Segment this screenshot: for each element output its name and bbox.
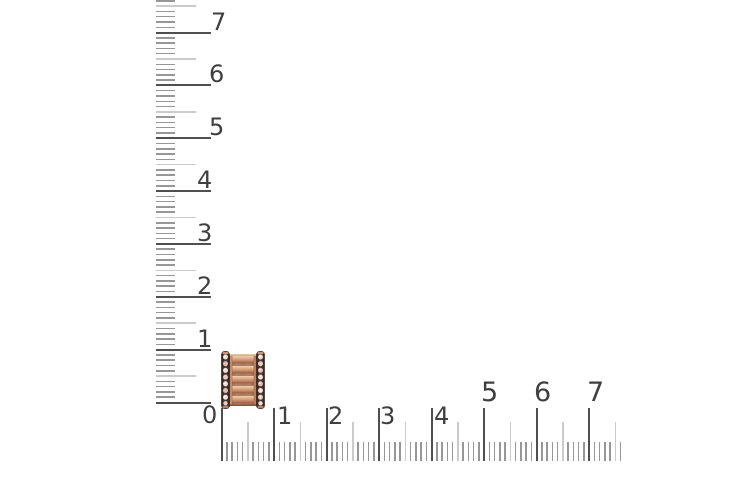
- ruler-tick: [415, 442, 417, 461]
- ruler-tick: [279, 442, 281, 461]
- ruler-tick: [156, 79, 175, 81]
- ruler-tick: [156, 365, 175, 367]
- ruler-tick: [573, 442, 575, 461]
- ruler-tick: [504, 442, 506, 461]
- ruler-tick: [499, 442, 501, 461]
- ruler-tick: [156, 153, 175, 155]
- ruler-tick: [156, 312, 175, 314]
- ruler-tick: [156, 375, 196, 377]
- ruler-tick: [294, 442, 296, 461]
- ruler-tick: [156, 227, 175, 229]
- ruler-tick: [431, 408, 433, 461]
- ruler-tick: [410, 442, 412, 461]
- ruler-tick: [389, 442, 391, 461]
- ruler-tick: [252, 442, 254, 461]
- ruler-tick: [156, 270, 196, 272]
- ruler-tick: [156, 5, 196, 7]
- ruler-tick: [405, 422, 407, 461]
- ruler-tick: [156, 381, 175, 383]
- ruler-tick: [336, 442, 338, 461]
- ruler-tick: [331, 442, 333, 461]
- ruler-tick: [156, 0, 175, 2]
- ruler-tick: [156, 95, 175, 97]
- ruler-tick: [263, 442, 265, 461]
- ruler-tick: [156, 21, 175, 23]
- ruler-tick: [457, 422, 459, 461]
- ruler-tick: [156, 74, 175, 76]
- ruler-tick: [300, 422, 302, 461]
- ruler-label-2: 2: [197, 274, 212, 298]
- ruler-tick: [156, 90, 175, 92]
- ruler-tick: [436, 442, 438, 461]
- ruler-label-2: 2: [328, 404, 343, 428]
- ruler-tick: [352, 422, 354, 461]
- ruler-tick: [156, 137, 211, 139]
- ruler-tick: [156, 211, 175, 213]
- bead-left-gem-rim: [222, 351, 230, 408]
- ruler-tick: [520, 442, 522, 461]
- ruler-tick: [156, 27, 175, 29]
- ruler-label-6: 6: [209, 62, 224, 86]
- ruler-tick: [604, 442, 606, 461]
- ruler-tick: [321, 442, 323, 461]
- ruler-tick: [156, 101, 175, 103]
- ruler-tick: [552, 442, 554, 461]
- ruler-tick: [156, 164, 196, 166]
- ruler-tick: [373, 442, 375, 461]
- ruler-tick: [156, 64, 175, 66]
- ruler-tick: [156, 359, 175, 361]
- ruler-tick: [609, 442, 611, 461]
- ruler-tick: [231, 442, 233, 461]
- ruler-tick: [156, 196, 175, 198]
- ruler-tick: [156, 116, 175, 118]
- ruler-tick: [156, 354, 175, 356]
- bead-right-gem-rim: [257, 351, 265, 408]
- ruler-tick: [156, 32, 211, 34]
- ruler-tick: [494, 442, 496, 461]
- ruler-tick: [156, 254, 175, 256]
- ruler-tick: [156, 222, 175, 224]
- ruler-tick: [156, 48, 175, 50]
- ruler-tick: [342, 442, 344, 461]
- ruler-label-4: 4: [197, 168, 212, 192]
- ruler-tick: [156, 259, 175, 261]
- ruler-tick: [620, 442, 622, 461]
- ruler-tick: [541, 442, 543, 461]
- ruler-tick: [536, 408, 538, 461]
- ruler-label-5: 5: [481, 379, 498, 406]
- product-image-bead-charm: [221, 351, 265, 409]
- ruler-tick: [156, 322, 196, 324]
- ruler-tick: [562, 422, 564, 461]
- ruler-tick: [156, 396, 175, 398]
- ruler-tick: [156, 174, 175, 176]
- ruler-label-7: 7: [587, 379, 604, 406]
- ruler-tick: [156, 16, 175, 18]
- ruler-label-6: 6: [534, 379, 551, 406]
- ruler-tick: [363, 442, 365, 461]
- ruler-tick: [156, 301, 175, 303]
- ruler-tick: [426, 442, 428, 461]
- ruler-label-1: 1: [277, 404, 292, 428]
- ruler-tick: [289, 442, 291, 461]
- ruler-tick: [546, 442, 548, 461]
- ruler-tick: [489, 442, 491, 461]
- ruler-tick: [156, 206, 175, 208]
- ruler-tick: [156, 344, 175, 346]
- ruler-tick: [156, 42, 175, 44]
- ruler-tick: [156, 328, 175, 330]
- ruler-tick: [156, 391, 175, 393]
- ruler-tick: [615, 422, 617, 461]
- ruler-tick: [156, 143, 175, 145]
- ruler-tick: [583, 442, 585, 461]
- ruler-tick: [452, 442, 454, 461]
- ruler-tick: [156, 106, 175, 108]
- ruler-tick: [578, 442, 580, 461]
- ruler-tick: [156, 84, 211, 86]
- ruler-tick: [156, 307, 175, 309]
- ruler-tick: [420, 442, 422, 461]
- ruler-tick: [156, 333, 175, 335]
- ruler-tick: [258, 442, 260, 461]
- ruler-tick: [156, 201, 175, 203]
- ruler-tick: [473, 442, 475, 461]
- ruler-tick: [588, 408, 590, 461]
- ruler-tick: [567, 442, 569, 461]
- ruler-tick: [156, 37, 175, 39]
- ruler-tick: [156, 169, 175, 171]
- ruler-tick: [237, 442, 239, 461]
- ruler-tick: [156, 11, 175, 13]
- ruler-tick: [557, 442, 559, 461]
- ruler-tick: [310, 442, 312, 461]
- ruler-tick: [156, 370, 175, 372]
- ruler-tick: [242, 442, 244, 461]
- ruler-tick: [599, 442, 601, 461]
- ruler-tick: [399, 442, 401, 461]
- ruler-tick: [156, 217, 196, 219]
- bead-gold-body: [230, 354, 257, 406]
- ruler-label-3: 3: [197, 221, 212, 245]
- ruler-tick: [447, 442, 449, 461]
- ruler-tick: [525, 442, 527, 461]
- ruler-tick: [156, 69, 175, 71]
- ruler-label-7: 7: [211, 10, 226, 34]
- ruler-tick: [156, 338, 175, 340]
- ruler-tick: [510, 422, 512, 461]
- ruler-tick: [441, 442, 443, 461]
- ruler-tick: [156, 317, 175, 319]
- ruler-tick: [156, 238, 175, 240]
- ruler-tick: [478, 442, 480, 461]
- ruler-tick: [247, 422, 249, 461]
- ruler-tick: [531, 442, 533, 461]
- ruler-tick: [515, 442, 517, 461]
- ruler-tick: [305, 442, 307, 461]
- ruler-tick: [594, 442, 596, 461]
- ruler-label-0: 0: [202, 403, 217, 427]
- ruler-tick: [156, 127, 175, 129]
- ruler-tick: [368, 442, 370, 461]
- ruler-tick: [221, 408, 223, 461]
- ruler-label-3: 3: [380, 404, 395, 428]
- ruler-tick: [156, 291, 175, 293]
- ruler-tick: [347, 442, 349, 461]
- ruler-tick: [156, 264, 175, 266]
- ruler-tick: [156, 185, 175, 187]
- ruler-tick: [357, 442, 359, 461]
- ruler-tick: [156, 53, 175, 55]
- ruler-tick: [273, 408, 275, 461]
- ruler-label-4: 4: [434, 404, 449, 428]
- ruler-tick: [156, 58, 196, 60]
- ruler-tick: [156, 233, 175, 235]
- ruler-tick: [462, 442, 464, 461]
- ruler-tick: [226, 442, 228, 461]
- ruler-tick: [156, 248, 175, 250]
- ruler-tick: [156, 285, 175, 287]
- ruler-tick: [156, 386, 175, 388]
- ruler-tick: [384, 442, 386, 461]
- photo-canvas: 1234567 01234567: [0, 0, 750, 500]
- ruler-tick: [468, 442, 470, 461]
- ruler-tick: [284, 442, 286, 461]
- ruler-tick: [156, 280, 175, 282]
- ruler-tick: [268, 442, 270, 461]
- ruler-tick: [483, 408, 485, 461]
- ruler-tick: [156, 275, 175, 277]
- ruler-tick: [156, 148, 175, 150]
- ruler-tick: [156, 132, 175, 134]
- ruler-tick: [156, 180, 175, 182]
- ruler-tick: [394, 442, 396, 461]
- ruler-tick: [156, 159, 175, 161]
- ruler-tick: [156, 111, 196, 113]
- ruler-tick: [315, 442, 317, 461]
- ruler-tick: [156, 122, 175, 124]
- ruler-label-5: 5: [209, 115, 224, 139]
- ruler-label-1: 1: [197, 327, 212, 351]
